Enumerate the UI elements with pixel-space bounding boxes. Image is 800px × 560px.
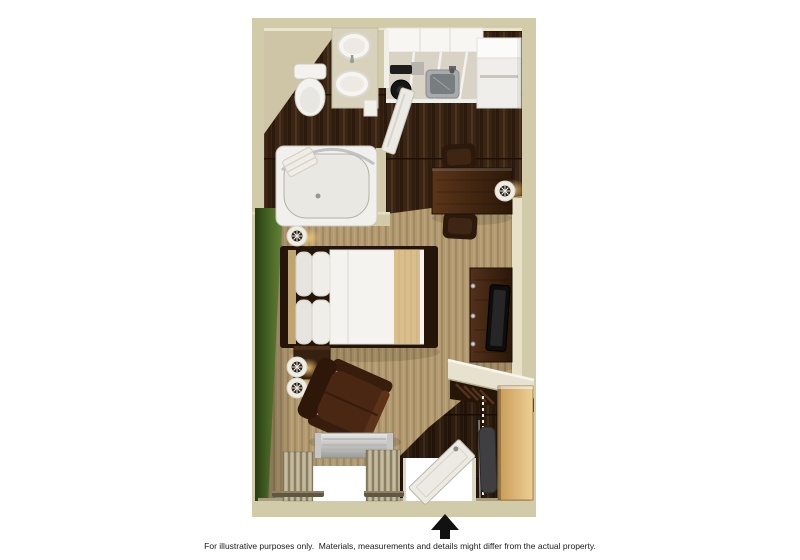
queen-bed (280, 246, 438, 348)
kitchen-sink (426, 66, 459, 98)
ironing-board (479, 427, 497, 494)
nightstand-wall-lamp-1 (287, 357, 307, 377)
headboard-wall-lamp (287, 226, 307, 246)
desk-wall-lamp (495, 181, 515, 201)
pillow (296, 252, 312, 296)
pillow (312, 300, 330, 344)
pillow (312, 252, 330, 296)
vanity-sink (332, 28, 378, 116)
entrance-arrow (431, 514, 459, 539)
table-chair-upper (441, 143, 477, 171)
pillow (296, 300, 312, 344)
door-frame-strip (384, 30, 389, 88)
wardrobe-cabinet (498, 386, 533, 500)
footboard (424, 246, 438, 348)
hand-towel (364, 100, 377, 116)
wall-bottom (252, 501, 536, 517)
floorplan-image (0, 0, 800, 560)
floorplan-page: For illustrative purposes only. Material… (0, 0, 800, 560)
television (486, 284, 511, 351)
tv-area (470, 268, 512, 362)
refrigerator (477, 38, 521, 108)
bed-runner (394, 250, 420, 344)
disclaimer-text: For illustrative purposes only. Material… (0, 540, 800, 552)
table-chair-lower (442, 212, 477, 240)
upper-cabinets (386, 28, 483, 52)
toilet (294, 64, 326, 116)
